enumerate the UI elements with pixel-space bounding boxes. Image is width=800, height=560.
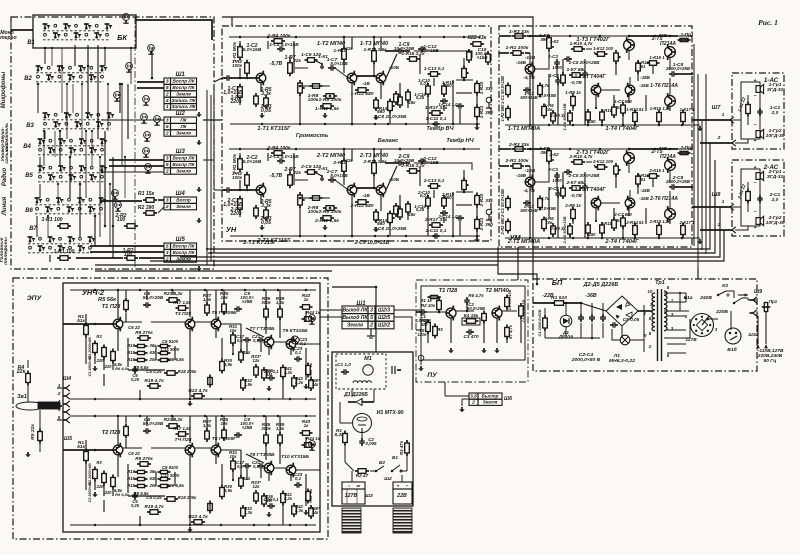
- svg-text:+: +: [754, 165, 757, 171]
- svg-text:24к: 24к: [311, 510, 320, 515]
- svg-text:К7 4,7к: К7 4,7к: [508, 324, 513, 339]
- svg-text:500×15В: 500×15В: [520, 208, 537, 213]
- svg-text:100к: 100к: [232, 175, 243, 180]
- svg-text:1-К12 100: 1-К12 100: [593, 46, 614, 51]
- svg-text:22В: 22В: [396, 493, 407, 499]
- svg-text:22к: 22к: [292, 170, 301, 176]
- svg-text:150: 150: [588, 232, 596, 237]
- svg-text:Ш5: Ш5: [64, 436, 72, 442]
- svg-text:Пр1: Пр1: [769, 299, 778, 304]
- svg-text:В6: В6: [25, 208, 33, 214]
- svg-text:Ш2/3: Ш2/3: [378, 308, 390, 314]
- svg-text:0,005: 0,005: [366, 441, 378, 446]
- svg-text:БП: БП: [552, 278, 563, 287]
- svg-text:120к: 120к: [418, 332, 428, 337]
- svg-text:2: 2: [165, 168, 169, 174]
- svg-text:12к: 12к: [253, 358, 261, 363]
- svg-text:×25В: ×25В: [242, 425, 253, 430]
- svg-text:50,0×25В: 50,0×25В: [143, 295, 164, 300]
- svg-text:1-С3: 1-С3: [548, 54, 558, 59]
- svg-text:2: 2: [165, 130, 169, 136]
- svg-text:ТЧ П28: ТЧ П28: [175, 437, 192, 443]
- svg-text:+: +: [754, 78, 757, 84]
- svg-text:ЭПУ: ЭПУ: [27, 295, 43, 302]
- svg-text:1-С5 20,0×25В: 1-С5 20,0×25В: [569, 60, 601, 65]
- svg-text:1-С13 0,1: 1-С13 0,1: [424, 66, 445, 71]
- svg-text:В5: В5: [25, 173, 33, 179]
- svg-text:5,0×15В: 5,0×15В: [330, 61, 348, 66]
- svg-text:R3: R3: [437, 327, 443, 332]
- svg-text:1-R8 1к: 1-R8 1к: [565, 90, 581, 95]
- svg-text:В3: В3: [26, 123, 34, 129]
- svg-text:2-R1 100к: 2-R1 100к: [505, 158, 529, 164]
- svg-text:1-С7 680: 1-С7 680: [614, 99, 632, 104]
- svg-text:Тр1: Тр1: [655, 280, 665, 286]
- svg-text:150: 150: [444, 195, 452, 200]
- svg-text:-5,7В: -5,7В: [270, 173, 283, 179]
- svg-text:Воспр ЛК: Воспр ЛК: [173, 250, 196, 255]
- svg-text:Выход ПК: Выход ПК: [342, 315, 368, 321]
- svg-text:-0,7В: -0,7В: [570, 193, 582, 198]
- svg-text:2-Т6 П214А: 2-Т6 П214А: [649, 196, 678, 202]
- svg-text:R2 390: R2 390: [138, 205, 155, 211]
- svg-text:R5 22к: R5 22к: [30, 424, 36, 440]
- svg-text:М1: М1: [364, 356, 372, 362]
- svg-text:R5 56к: R5 56к: [98, 297, 117, 303]
- svg-text:Земля: Земля: [483, 400, 498, 405]
- svg-text:-5,7В: -5,7В: [270, 61, 283, 67]
- svg-text:3: 3: [58, 407, 61, 412]
- svg-text:Ш2/5: Ш2/5: [378, 315, 390, 321]
- svg-text:2-R20: 2-R20: [479, 193, 484, 207]
- svg-text:ЛК: ЛК: [179, 124, 187, 129]
- svg-text:С5 30,0×15В: С5 30,0×15В: [522, 299, 526, 322]
- svg-text:1-С11 0,1: 1-С11 0,1: [426, 116, 447, 122]
- svg-text:2000,0×25В: 2000,0×25В: [665, 66, 691, 71]
- svg-text:0,25: 0,25: [416, 95, 425, 100]
- svg-text:51: 51: [617, 218, 622, 223]
- svg-text:Быстр: Быстр: [482, 393, 499, 398]
- svg-text:-16В: -16В: [516, 60, 527, 65]
- svg-text:R17 1,5к: R17 1,5к: [173, 426, 191, 431]
- svg-text:2-R13 1,6к: 2-R13 1,6к: [363, 159, 388, 164]
- svg-text:5: 5: [166, 244, 169, 250]
- svg-text:150: 150: [588, 119, 596, 124]
- svg-text:стерео: стерео: [0, 35, 17, 41]
- svg-text:5: 5: [166, 124, 169, 130]
- svg-text:1: 1: [722, 199, 725, 205]
- svg-text:×25В: ×25В: [242, 299, 253, 304]
- svg-text:0,25: 0,25: [416, 207, 425, 212]
- svg-text:П214А: П214А: [660, 41, 676, 47]
- svg-text:Рис. 1: Рис. 1: [758, 18, 778, 27]
- svg-text:8,2к: 8,2к: [284, 370, 293, 375]
- svg-text:сальный: сальный: [3, 142, 10, 163]
- svg-text:0,1: 0,1: [237, 464, 244, 469]
- svg-text:2: 2: [165, 204, 169, 210]
- svg-text:1-Т1 КТ315Г: 1-Т1 КТ315Г: [257, 126, 291, 132]
- svg-text:УН: УН: [226, 225, 237, 234]
- svg-text:С9 9100: С9 9100: [162, 339, 179, 344]
- svg-text:33к: 33к: [485, 198, 493, 203]
- svg-text:−: −: [754, 180, 757, 186]
- svg-text:R24: R24: [242, 350, 250, 355]
- svg-text:1-R3 33к: 1-R3 33к: [509, 29, 530, 35]
- svg-text:0,01: 0,01: [420, 193, 429, 198]
- svg-text:2-К2: 2-К2: [548, 152, 559, 157]
- svg-text:1-К2: 1-К2: [549, 39, 559, 44]
- svg-text:R3: R3: [96, 460, 102, 465]
- svg-text:2-С9 10,0×25В: 2-С9 10,0×25В: [354, 240, 390, 246]
- svg-text:И1 МТХ-90: И1 МТХ-90: [377, 410, 404, 416]
- svg-text:2-С6 50,0×15В: 2-С6 50,0×15В: [562, 216, 567, 244]
- svg-text:1-R1 100: 1-R1 100: [53, 249, 74, 255]
- svg-text:3: 3: [166, 156, 169, 162]
- svg-text:390: 390: [485, 222, 493, 227]
- svg-text:-1В: -1В: [362, 81, 370, 86]
- svg-text:1-Т4 ГТ404Г: 1-Т4 ГТ404Г: [605, 126, 639, 132]
- svg-text:2000,0×25В: 2000,0×25В: [665, 179, 691, 184]
- svg-text:-1В: -1В: [362, 193, 370, 198]
- svg-text:R18 200к: R18 200к: [178, 495, 198, 500]
- svg-text:0,1: 0,1: [300, 341, 307, 346]
- svg-text:390: 390: [540, 37, 548, 42]
- svg-text:R3: R3: [96, 334, 102, 339]
- svg-text:−: −: [754, 122, 757, 128]
- svg-text:Т1 П28: Т1 П28: [439, 288, 458, 294]
- svg-text:5,0×15В: 5,0×15В: [243, 47, 262, 53]
- svg-text:С3 2000×6В: С3 2000×6В: [88, 481, 92, 502]
- svg-text:БК: БК: [117, 33, 127, 42]
- svg-text:0,25: 0,25: [131, 503, 140, 508]
- svg-text:1: 1: [58, 383, 61, 388]
- svg-text:8,2к: 8,2к: [295, 380, 304, 385]
- svg-text:1к: 1к: [304, 297, 309, 302]
- svg-text:Выход ЛК: Выход ЛК: [342, 308, 368, 314]
- svg-text:2: 2: [471, 400, 475, 406]
- svg-text:24к: 24к: [311, 382, 320, 387]
- svg-text:С4 5,0×15В: С4 5,0×15В: [508, 290, 512, 311]
- svg-text:В1: В1: [27, 40, 35, 46]
- svg-text:220: 220: [104, 490, 113, 495]
- svg-text:С22 0,1: С22 0,1: [264, 369, 280, 374]
- svg-text:4,7к: 4,7к: [540, 196, 550, 201]
- svg-text:-36В: -36В: [585, 293, 597, 299]
- svg-text:51: 51: [617, 105, 622, 110]
- svg-text:0,1: 0,1: [295, 476, 302, 481]
- svg-text:-16В: -16В: [639, 83, 649, 88]
- svg-text:В2: В2: [24, 76, 32, 82]
- svg-text:Зв1: Зв1: [17, 394, 27, 400]
- svg-text:-18В: -18В: [640, 188, 650, 193]
- svg-text:1-К16 1: 1-К16 1: [649, 55, 665, 60]
- svg-text:2-R3 33к: 2-R3 33к: [508, 142, 530, 148]
- svg-text:1-С4: 1-С4: [549, 73, 559, 78]
- svg-text:Микрофоны: Микрофоны: [0, 72, 7, 108]
- svg-text:Земля: Земля: [176, 130, 191, 135]
- svg-text:R3 47к: R3 47к: [399, 440, 404, 455]
- svg-text:R44 1к: R44 1к: [306, 310, 321, 315]
- svg-text:Земля: Земля: [176, 204, 191, 209]
- svg-text:22к: 22к: [292, 58, 301, 64]
- svg-text:5: 5: [166, 85, 169, 91]
- svg-text:1-R10 4,7к: 1-R10 4,7к: [570, 41, 594, 46]
- svg-text:2-К17 1: 2-К17 1: [679, 220, 695, 225]
- svg-text:680: 680: [377, 221, 385, 226]
- svg-text:Тембр ВЧ: Тембр ВЧ: [426, 125, 454, 132]
- svg-text:50 Гц: 50 Гц: [764, 358, 777, 364]
- svg-text:3,9к: 3,9к: [224, 362, 233, 367]
- svg-text:К22 43к: К22 43к: [468, 35, 487, 41]
- svg-text:Т3 П28: Т3 П28: [175, 311, 191, 317]
- svg-text:390: 390: [485, 110, 493, 115]
- svg-text:18к: 18к: [409, 212, 417, 217]
- svg-text:220: 220: [104, 364, 113, 369]
- svg-text:Воспр ПК: Воспр ПК: [172, 85, 195, 90]
- svg-text:С6 22: С6 22: [128, 325, 140, 330]
- svg-text:2-Т2 МП40: 2-Т2 МП40: [316, 153, 346, 159]
- svg-text:1-R20: 1-R20: [479, 81, 484, 94]
- svg-text:2: 2: [648, 344, 652, 349]
- svg-text:С13 3000: С13 3000: [161, 473, 180, 478]
- svg-text:Воспр: Воспр: [176, 198, 191, 203]
- svg-text:1-С1 50,0×15В: 1-С1 50,0×15В: [500, 76, 505, 104]
- svg-text:2-R14 51: 2-R14 51: [625, 220, 644, 225]
- svg-text:В1: В1: [392, 455, 398, 460]
- svg-text:2-R11: 2-R11: [599, 221, 612, 226]
- svg-text:Громкость: Громкость: [296, 133, 329, 139]
- svg-text:500×15В: 500×15В: [520, 95, 537, 100]
- svg-text:3,9к: 3,9к: [224, 488, 233, 493]
- svg-text:0,1: 0,1: [295, 350, 302, 355]
- svg-text:4: 4: [165, 98, 169, 104]
- svg-text:10к: 10к: [546, 107, 554, 112]
- svg-text:С24 0,1: С24 0,1: [264, 497, 280, 502]
- svg-text:5: 5: [58, 415, 61, 420]
- svg-text:4: 4: [57, 399, 61, 404]
- svg-text:1-С4 5,0×15В: 1-С4 5,0×15В: [269, 42, 299, 47]
- svg-text:R9 270к: R9 270к: [135, 456, 153, 461]
- svg-text:2: 2: [369, 323, 373, 329]
- svg-text:В1б: В1б: [727, 346, 737, 353]
- svg-text:Ш2: Ш2: [176, 111, 186, 117]
- svg-text:820: 820: [421, 322, 429, 327]
- svg-text:5: 5: [166, 162, 169, 168]
- svg-text:8,2к: 8,2к: [335, 432, 345, 437]
- svg-text:2: 2: [57, 391, 61, 396]
- svg-text:+: +: [754, 138, 757, 144]
- svg-text:12к: 12к: [253, 484, 261, 489]
- svg-text:100к: 100к: [308, 209, 319, 215]
- svg-text:0,1: 0,1: [237, 338, 244, 343]
- svg-text:С3 2000×6В: С3 2000×6В: [88, 355, 92, 376]
- svg-text:Ш2: Ш2: [384, 476, 392, 482]
- svg-text:0,01: 0,01: [420, 81, 429, 86]
- svg-text:5,0×15В: 5,0×15В: [243, 159, 262, 165]
- svg-text:2: 2: [165, 91, 169, 97]
- svg-text:С1 2000,0×50В: С1 2000,0×50В: [538, 309, 542, 336]
- svg-text:-16В: -16В: [639, 196, 649, 201]
- svg-text:51к: 51к: [77, 318, 85, 324]
- svg-text:100: 100: [117, 217, 126, 223]
- svg-text:3: 3: [166, 79, 169, 85]
- svg-text:Ш3: Ш3: [176, 149, 186, 155]
- svg-text:Земля: Земля: [347, 323, 363, 329]
- svg-text:10ГД-30: 10ГД-30: [766, 133, 785, 139]
- svg-text:ЗГД-31: ЗГД-31: [767, 87, 784, 93]
- svg-text:Т5 ГТ309Б: Т5 ГТ309Б: [212, 310, 237, 316]
- svg-text:51: 51: [641, 64, 646, 69]
- svg-text:ПК: ПК: [180, 118, 187, 123]
- svg-text:−: −: [754, 93, 757, 99]
- svg-text:1: 1: [166, 104, 169, 110]
- svg-text:2-С5 20,0×25В: 2-С5 20,0×25В: [568, 173, 601, 178]
- svg-text:3,3к: 3,3к: [244, 510, 253, 515]
- svg-text:2-R11 1,5к: 2-R11 1,5к: [314, 218, 339, 224]
- svg-text:8,3к: 8,3к: [295, 508, 304, 513]
- svg-text:1-С6 50,0×15В: 1-С6 50,0×15В: [562, 103, 567, 130]
- svg-text:Земля: Земля: [176, 168, 191, 173]
- svg-text:Радио: Радио: [2, 168, 8, 187]
- svg-text:2-R2 680: 2-R2 680: [500, 217, 505, 236]
- svg-text:К3: К3: [722, 283, 728, 289]
- svg-text:220: 220: [95, 484, 104, 489]
- svg-text:1-R13 1,6к: 1-R13 1,6к: [364, 47, 388, 52]
- svg-text:С13 3000: С13 3000: [161, 347, 180, 352]
- svg-text:R18 200к: R18 200к: [178, 369, 198, 374]
- svg-text:В1а: В1а: [683, 295, 692, 301]
- svg-text:3: 3: [166, 118, 169, 124]
- svg-text:R44 1к: R44 1к: [306, 436, 321, 441]
- svg-text:Ш4: Ш4: [176, 191, 186, 197]
- svg-text:2-С13 0,1: 2-С13 0,1: [423, 178, 445, 183]
- svg-text:33к: 33к: [485, 86, 493, 91]
- svg-text:51к: 51к: [77, 444, 85, 450]
- svg-text:Т9 КТ315Б: Т9 КТ315Б: [282, 328, 308, 334]
- svg-text:2-R15 1,8к: 2-R15 1,8к: [649, 219, 672, 224]
- svg-text:2-R4 100к: 2-R4 100к: [267, 145, 291, 151]
- svg-text:10,0×15В: 10,0×15В: [538, 206, 556, 211]
- svg-text:−: −: [754, 209, 757, 215]
- svg-text:10,0×15В: 10,0×15В: [538, 93, 556, 98]
- svg-text:3,9к: 3,9к: [244, 382, 253, 387]
- svg-text:R17 1,5к: R17 1,5к: [173, 300, 191, 305]
- svg-text:2,0: 2,0: [771, 110, 779, 116]
- svg-text:22к: 22к: [16, 369, 26, 375]
- svg-text:П214А: П214А: [660, 154, 676, 160]
- svg-text:Ш9: Ш9: [754, 289, 762, 295]
- svg-text:R9 270к: R9 270к: [135, 330, 153, 335]
- svg-text:Д2-Д5 Д226Б: Д2-Д5 Д226Б: [583, 282, 619, 288]
- svg-text:+: +: [754, 225, 757, 231]
- svg-text:1-R2 680: 1-R2 680: [500, 104, 505, 122]
- svg-text:2-С4: 2-С4: [548, 186, 559, 191]
- svg-text:100: 100: [124, 252, 133, 258]
- svg-text:100к: 100к: [232, 63, 243, 68]
- svg-text:Ш6: Ш6: [504, 396, 512, 402]
- svg-text:1-R1 100: 1-R1 100: [41, 217, 62, 223]
- svg-text:2-К12 100: 2-К12 100: [592, 159, 614, 164]
- svg-text:1-R11 1,5к: 1-R11 1,5к: [315, 106, 339, 112]
- svg-text:R1 510: R1 510: [551, 295, 567, 301]
- svg-text:ПУ: ПУ: [427, 372, 438, 379]
- svg-text:R45* 2к: R45* 2к: [309, 362, 313, 377]
- svg-text:18к: 18к: [409, 100, 417, 105]
- svg-text:-18В: -18В: [640, 75, 650, 80]
- svg-text:Т2 МП40: Т2 МП40: [485, 288, 509, 294]
- svg-text:240В: 240В: [699, 295, 712, 301]
- svg-text:Линия: Линия: [2, 196, 8, 216]
- svg-text:Ш8: Ш8: [712, 192, 722, 198]
- svg-text:Т10 КТ315Б: Т10 КТ315Б: [281, 454, 309, 460]
- svg-text:1-R4 100к: 1-R4 100к: [268, 33, 291, 39]
- svg-text:100к: 100к: [308, 97, 319, 103]
- svg-text:R2 10к: R2 10к: [421, 303, 436, 308]
- svg-text:телефоны: телефоны: [2, 236, 9, 264]
- svg-text:С1 1,0: С1 1,0: [337, 362, 351, 367]
- svg-text:Земля: Земля: [176, 91, 191, 96]
- svg-text:С1 2000×6В: С1 2000×6В: [88, 463, 92, 485]
- svg-text:С6 22: С6 22: [128, 451, 140, 456]
- svg-text:УНЧ-2: УНЧ-2: [82, 288, 105, 297]
- svg-text:-16В: -16В: [516, 173, 527, 178]
- svg-text:-0,7В: -0,7В: [570, 80, 582, 85]
- svg-text:0,25: 0,25: [131, 377, 140, 382]
- svg-text:2-Т1 МП40А: 2-Т1 МП40А: [507, 239, 540, 245]
- svg-text:R6 6,8к: R6 6,8к: [115, 366, 130, 371]
- svg-text:R6 4,7к: R6 4,7к: [468, 293, 484, 298]
- svg-text:Воспр ЛК: Воспр ЛК: [173, 156, 196, 161]
- svg-text:Д1 Д226Б: Д1 Д226Б: [343, 392, 368, 398]
- svg-text:К4 15к: К4 15к: [464, 313, 479, 318]
- svg-text:8,2к: 8,2к: [284, 496, 293, 501]
- svg-text:1-Т1 МП40А: 1-Т1 МП40А: [508, 126, 540, 132]
- svg-text:1-Т2 МП40: 1-Т2 МП40: [317, 41, 346, 47]
- svg-text:Запись ЛК: Запись ЛК: [171, 104, 196, 109]
- svg-text:С1 2000×6В: С1 2000×6В: [88, 337, 92, 359]
- svg-text:×15В: ×15В: [477, 55, 489, 60]
- svg-text:3: 3: [166, 250, 169, 256]
- svg-text:1-Т6 П214А: 1-Т6 П214А: [650, 83, 678, 89]
- svg-text:Воспр ПК: Воспр ПК: [172, 162, 195, 167]
- svg-text:R1 15к: R1 15к: [138, 191, 155, 197]
- svg-text:В7: В7: [29, 226, 37, 232]
- svg-text:50,0×25В: 50,0×25В: [467, 306, 485, 311]
- svg-text:С9 9100: С9 9100: [162, 465, 179, 470]
- svg-text:Воспр ПК: Воспр ПК: [172, 244, 195, 249]
- svg-text:Ш10: Ш10: [748, 332, 758, 337]
- svg-text:3,5: 3,5: [470, 393, 477, 399]
- svg-text:R24: R24: [242, 476, 250, 481]
- svg-text:ЗГД-31: ЗГД-31: [767, 174, 784, 180]
- svg-text:10ГД-30: 10ГД-30: [766, 220, 785, 226]
- svg-text:3: 3: [166, 198, 169, 204]
- svg-text:680: 680: [377, 109, 385, 114]
- svg-text:2-R10 4,7к: 2-R10 4,7к: [569, 154, 594, 159]
- svg-text:220: 220: [95, 358, 104, 363]
- svg-text:1-R11: 1-R11: [600, 108, 612, 113]
- svg-text:10: 10: [648, 289, 653, 294]
- svg-text:2000,0×50 В: 2000,0×50 В: [571, 357, 601, 363]
- svg-text:2-R8 1к: 2-R8 1к: [564, 203, 581, 208]
- svg-text:МН6,3-0,22: МН6,3-0,22: [609, 358, 635, 364]
- svg-text:Тембр НЧ: Тембр НЧ: [446, 137, 474, 144]
- svg-text:2-С4 5,0×15В: 2-С4 5,0×15В: [268, 154, 299, 159]
- svg-text:R2 47: R2 47: [356, 473, 369, 478]
- svg-text:2: 2: [717, 135, 721, 141]
- svg-text:1: 1: [722, 112, 725, 118]
- svg-text:Баланс: Баланс: [378, 138, 399, 144]
